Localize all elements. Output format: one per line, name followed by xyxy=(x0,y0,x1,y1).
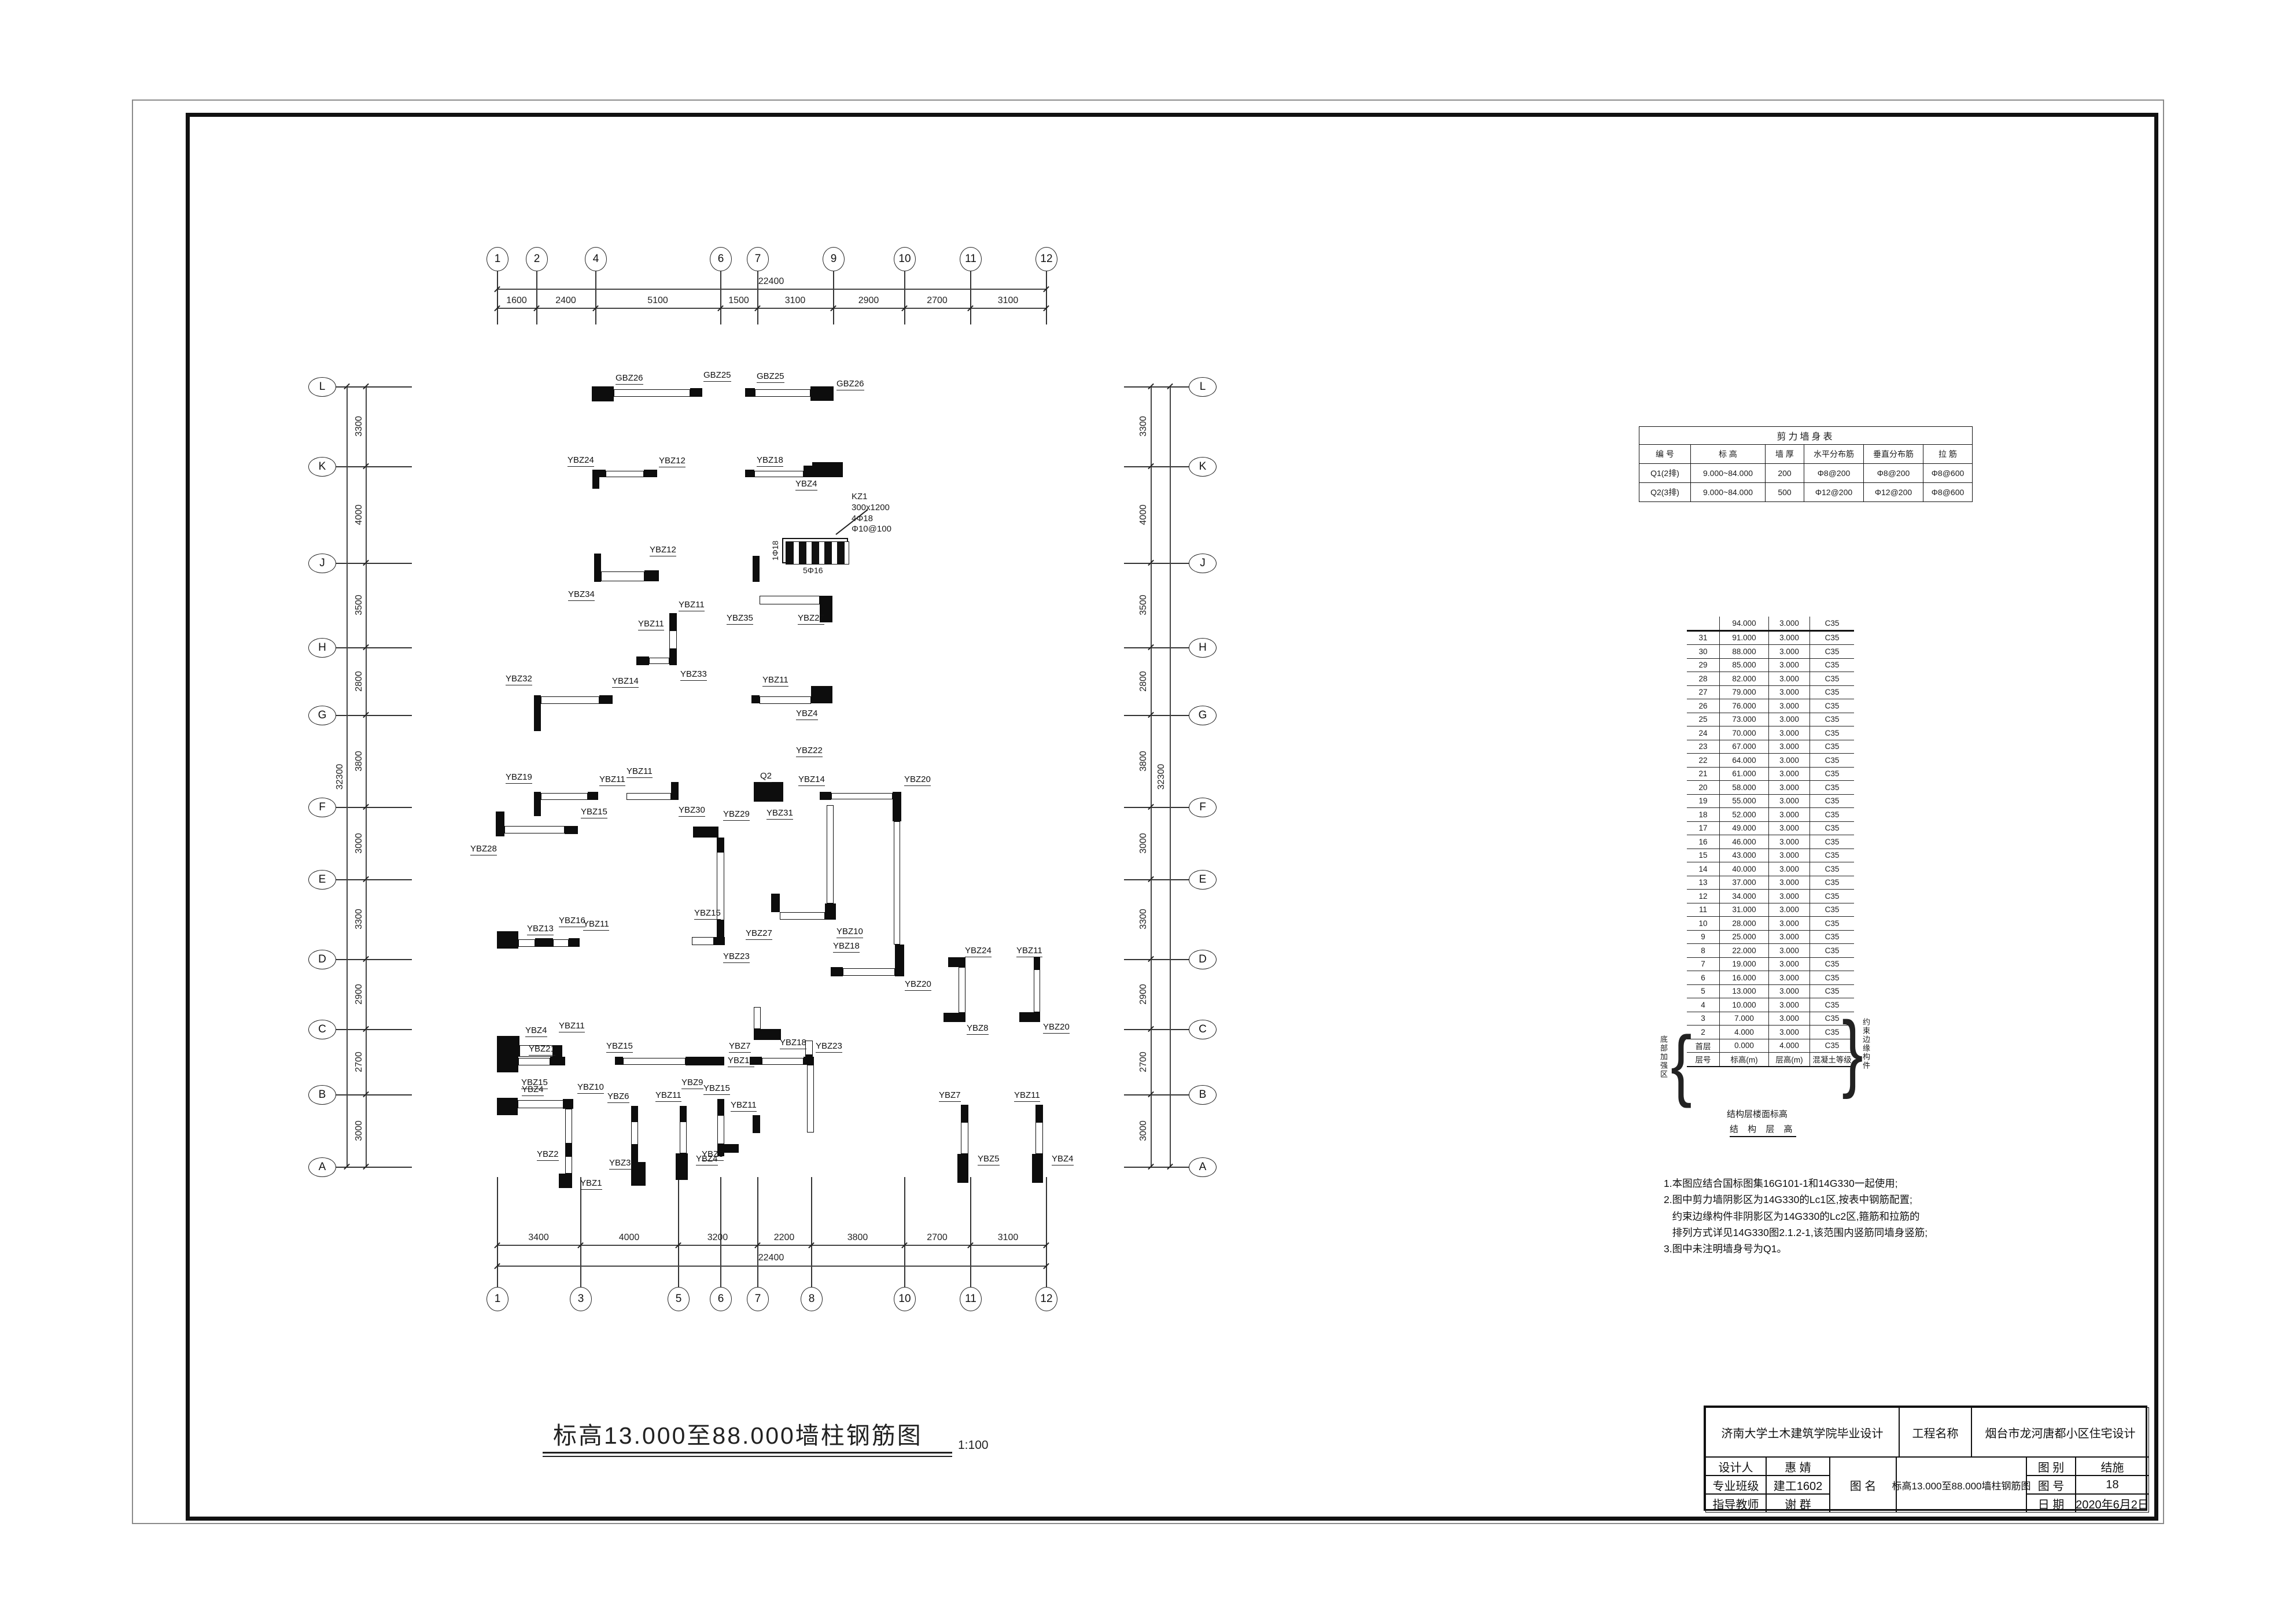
drawing-scale: 1:100 xyxy=(958,1438,989,1452)
wall-segment xyxy=(717,1115,724,1144)
wall-segment xyxy=(623,1058,686,1065)
wall-segment xyxy=(760,696,811,704)
grid-bubble-bottom: 7 xyxy=(747,1287,769,1311)
dim-right: 3300 xyxy=(1138,416,1149,437)
wall-boundary-element xyxy=(771,894,780,912)
wall-boundary-element xyxy=(636,656,649,665)
wall-segment xyxy=(1034,969,1040,1012)
right-zone-label: 约束边缘构件 xyxy=(1860,1018,1871,1070)
dim-top: 2900 xyxy=(846,296,892,306)
wall-boundary-element xyxy=(957,1154,968,1183)
wall-label: GBZ25 xyxy=(703,371,731,382)
dim-left: 3000 xyxy=(354,833,364,854)
wall-segment xyxy=(504,826,565,833)
wall-label: YBZ15 xyxy=(694,909,721,920)
wall-segment xyxy=(565,1156,572,1174)
dim-top: 2700 xyxy=(914,296,960,306)
grid-bubble-left: G xyxy=(308,706,336,725)
grid-bubble-bottom: 8 xyxy=(801,1287,823,1311)
drawing-title: 标高13.000至88.000墙柱钢筋图 xyxy=(553,1416,923,1451)
wall-segment xyxy=(553,939,569,947)
grid-line-bottom xyxy=(580,1177,581,1287)
grid-bubble-right: D xyxy=(1189,950,1217,969)
wall-label: YBZ15 xyxy=(606,1042,633,1053)
dim-right: 3000 xyxy=(1138,833,1149,854)
wall-boundary-element xyxy=(686,1057,724,1065)
wall-segment xyxy=(843,968,895,976)
wall-label: YBZ11 xyxy=(1016,946,1042,957)
dim-line-right-segments xyxy=(1151,386,1152,1167)
title-block-school: 济南大学土木建筑学院毕业设计 xyxy=(1705,1407,1899,1457)
wall-boundary-element xyxy=(745,470,754,477)
wall-label: YBZ7 xyxy=(939,1091,961,1102)
dim-left: 3000 xyxy=(354,1120,364,1141)
wall-boundary-element xyxy=(671,782,679,800)
grid-bubble-top: 6 xyxy=(710,247,732,271)
kz1-bottom-label: 5Φ16 xyxy=(803,566,823,575)
wall-label: YBZ11 xyxy=(638,619,664,630)
title-block-project-name: 烟台市龙河唐都小区住宅设计 xyxy=(1971,1407,2149,1457)
dim-right: 2900 xyxy=(1138,984,1149,1005)
floor-elevation-table: 94.0003.000C353191.0003.000C353088.0003.… xyxy=(1687,617,1854,1067)
wall-boundary-element xyxy=(534,695,541,731)
wall-label: YBZ20 xyxy=(1043,1023,1070,1034)
grid-bubble-bottom: 11 xyxy=(960,1287,982,1311)
grid-bubble-bottom: 1 xyxy=(487,1287,508,1311)
wall-label: YBZ22 xyxy=(796,746,823,757)
wall-segment xyxy=(626,793,671,800)
wall-label: YBZ2 xyxy=(537,1150,559,1161)
wall-label: YBZ5 xyxy=(978,1154,1000,1165)
wall-boundary-element xyxy=(810,386,834,401)
grid-line-right xyxy=(1124,563,1189,564)
dim-left: 3300 xyxy=(354,909,364,929)
kz1-rebar-pattern xyxy=(786,541,849,565)
wall-boundary-element xyxy=(1035,1105,1043,1122)
wall-label: YBZ7 xyxy=(729,1042,751,1053)
wall-label: YBZ19 xyxy=(506,773,532,784)
title-block-date-label: 日 期 xyxy=(2026,1494,2076,1513)
dim-line-left-total xyxy=(347,386,348,1167)
dim-right: 3000 xyxy=(1138,1120,1149,1141)
grid-bubble-right: E xyxy=(1189,870,1217,890)
dim-bottom: 3100 xyxy=(985,1233,1031,1243)
wall-label: YBZ11 xyxy=(679,600,705,611)
wall-boundary-element xyxy=(961,1105,968,1122)
wall-segment xyxy=(760,596,820,604)
grid-bubble-right: A xyxy=(1189,1157,1217,1177)
wall-boundary-element xyxy=(717,920,724,937)
grid-bubble-top: 2 xyxy=(526,247,548,271)
grid-bubble-left: C xyxy=(308,1020,336,1039)
dim-right: 2800 xyxy=(1138,671,1149,692)
dim-total-left: 32300 xyxy=(335,764,345,790)
wall-label: YBZ9 xyxy=(681,1078,703,1089)
wall-label: YBZ12 xyxy=(650,545,676,556)
grid-bubble-top: 12 xyxy=(1035,247,1057,271)
grid-bubble-bottom: 12 xyxy=(1035,1287,1057,1311)
wall-label: YBZ11 xyxy=(655,1091,681,1102)
wall-label: YBZ18 xyxy=(780,1038,806,1049)
wall-segment xyxy=(541,793,588,800)
grid-bubble-right: J xyxy=(1189,554,1217,573)
dim-left: 2700 xyxy=(354,1052,364,1072)
wall-label: YBZ10 xyxy=(577,1083,604,1094)
wall-boundary-element xyxy=(812,462,843,477)
grid-bubble-left: D xyxy=(308,950,336,969)
dim-left: 2800 xyxy=(354,671,364,692)
wall-segment xyxy=(518,1058,550,1065)
grid-bubble-right: F xyxy=(1189,798,1217,817)
dim-top: 1500 xyxy=(716,296,762,306)
wall-segment xyxy=(614,389,690,397)
dim-bottom: 2700 xyxy=(914,1233,960,1243)
general-notes: 1.本图应结合国标图集16G101-1和14G330一起使用;2.图中剪力墙阴影… xyxy=(1664,1175,1928,1257)
title-block-class-value: 建工1602 xyxy=(1766,1476,1830,1494)
wall-label: YBZ4 xyxy=(796,709,818,720)
wall-label: GBZ26 xyxy=(616,374,643,385)
wall-segment xyxy=(762,1058,804,1065)
wall-boundary-element xyxy=(496,811,504,836)
wall-label: YBZ33 xyxy=(680,670,707,681)
wall-label: YBZ24 xyxy=(965,946,992,957)
dim-right: 3300 xyxy=(1138,909,1149,929)
dim-top: 3100 xyxy=(772,296,819,306)
drawing-title-underline2 xyxy=(543,1456,952,1457)
wall-segment xyxy=(601,571,644,581)
wall-label: YBZ18 xyxy=(833,942,860,953)
title-block-type-value: 结施 xyxy=(2076,1457,2149,1476)
grid-bubble-bottom: 5 xyxy=(668,1287,690,1311)
grid-line-bottom xyxy=(497,1177,498,1287)
title-block-name-label: 图 名 xyxy=(1830,1457,1896,1513)
wall-label: GBZ26 xyxy=(836,379,864,390)
wall-label: YBZ27 xyxy=(746,929,772,940)
wall-label: YBZ3 xyxy=(609,1159,631,1170)
dim-left: 2900 xyxy=(354,984,364,1005)
dim-right: 4000 xyxy=(1138,504,1149,525)
wall-segment xyxy=(961,1122,968,1154)
wall-label: YBZ17 xyxy=(728,1056,754,1067)
wall-boundary-element xyxy=(690,388,702,397)
wall-label: YBZ18 xyxy=(757,456,783,467)
title-block-designer-label: 设计人 xyxy=(1705,1457,1766,1476)
title-block-advisor-value: 谢 群 xyxy=(1766,1494,1830,1513)
kz1-note: KZ1300x12004Φ18Φ10@100 xyxy=(852,492,891,535)
wall-label: YBZ6 xyxy=(607,1092,629,1103)
wall-segment xyxy=(959,967,965,1013)
wall-boundary-element xyxy=(811,686,832,703)
wall-boundary-element xyxy=(745,388,755,397)
wall-boundary-element xyxy=(724,1144,739,1153)
grid-line-right xyxy=(1124,1029,1189,1030)
wall-boundary-element xyxy=(644,470,657,477)
grid-bubble-left: L xyxy=(308,377,336,397)
dim-line-top-segments xyxy=(497,308,1046,309)
wall-segment xyxy=(754,1007,761,1029)
grid-line-bottom xyxy=(1046,1177,1047,1287)
wall-segment xyxy=(827,805,834,903)
wall-boundary-element xyxy=(820,792,831,800)
wall-boundary-element xyxy=(559,1174,572,1188)
wall-label: YBZ29 xyxy=(723,810,750,821)
wall-boundary-element xyxy=(1034,957,1040,969)
wall-boundary-element xyxy=(754,1029,781,1040)
wall-boundary-element xyxy=(831,967,843,976)
wall-boundary-element xyxy=(948,957,965,967)
grid-line-bottom xyxy=(811,1177,812,1287)
wall-boundary-element xyxy=(592,386,614,401)
left-zone-brace: { xyxy=(1671,1025,1692,1105)
wall-label: YBZ15 xyxy=(703,1084,730,1095)
wall-segment xyxy=(754,471,804,477)
wall-boundary-element xyxy=(534,792,541,816)
dim-bottom: 2200 xyxy=(761,1233,808,1243)
grid-line-right xyxy=(1124,715,1189,716)
wall-label: YBZ11 xyxy=(731,1101,757,1112)
grid-line-top xyxy=(1046,271,1047,324)
title-block: 济南大学土木建筑学院毕业设计 工程名称 烟台市龙河唐都小区住宅设计 设计人 惠 … xyxy=(1704,1406,2147,1511)
grid-bubble-left: E xyxy=(308,870,336,890)
wall-label: YBZ16 xyxy=(559,916,585,927)
wall-label: YBZ20 xyxy=(905,980,931,991)
dim-left: 4000 xyxy=(354,504,364,525)
wall-label: YBZ27 xyxy=(798,614,824,625)
wall-label: YBZ35 xyxy=(727,614,753,625)
wall-segment xyxy=(669,630,677,649)
grid-bubble-bottom: 10 xyxy=(894,1287,916,1311)
wall-label: YBZ31 xyxy=(766,809,793,820)
wall-segment xyxy=(518,939,535,947)
wall-label: YBZ11 xyxy=(583,920,609,931)
title-block-date-value: 2020年6月2日 xyxy=(2076,1494,2149,1513)
grid-bubble-right: G xyxy=(1189,706,1217,725)
wall-label: YBZ21 xyxy=(529,1045,555,1056)
dim-left: 3300 xyxy=(354,416,364,437)
wall-boundary-element xyxy=(497,1098,518,1115)
wall-label: GBZ25 xyxy=(757,372,784,383)
wall-label: Q2 xyxy=(760,772,772,783)
wall-segment xyxy=(631,1122,638,1145)
wall-label: YBZ4 xyxy=(525,1026,547,1037)
wall-label: YBZ11 xyxy=(626,767,653,778)
kz1-left-label: 1Φ18 xyxy=(771,541,780,561)
wall-boundary-element xyxy=(753,1115,760,1133)
wall-label: YBZ30 xyxy=(679,806,705,817)
dim-bottom: 3400 xyxy=(515,1233,562,1243)
wall-boundary-element xyxy=(751,695,760,703)
dim-top: 5100 xyxy=(635,296,681,306)
wall-label: YBZ8 xyxy=(702,1150,724,1161)
grid-line-right xyxy=(1124,647,1189,648)
title-block-class-label: 专业班级 xyxy=(1705,1476,1766,1494)
wall-segment xyxy=(805,1041,813,1055)
grid-line-right xyxy=(1124,807,1189,808)
grid-line-bottom xyxy=(904,1177,905,1287)
wall-label: YBZ11 xyxy=(599,775,625,786)
grid-bubble-right: K xyxy=(1189,457,1217,477)
wall-segment xyxy=(755,389,810,397)
grid-bubble-top: 4 xyxy=(585,247,607,271)
wall-label: YBZ4 xyxy=(1052,1154,1074,1165)
wall-segment xyxy=(780,912,825,920)
grid-line-bottom xyxy=(720,1177,721,1287)
dim-line-bottom-total xyxy=(497,1266,1046,1267)
shear-wall-table-grid: 剪力墙身表编 号标 高墙 厚水平分布筋垂直分布筋拉 筋Q1(2排)9.000~8… xyxy=(1639,426,1973,502)
grid-line-right xyxy=(1124,1094,1189,1095)
title-block-advisor-label: 指导教师 xyxy=(1705,1494,1766,1513)
drawing-title-underline xyxy=(543,1452,952,1454)
wall-boundary-element xyxy=(592,470,599,489)
wall-boundary-element xyxy=(895,945,904,976)
dim-line-right-total xyxy=(1170,386,1171,1167)
wall-label: YBZ4 xyxy=(522,1085,544,1096)
wall-label: YBZ20 xyxy=(904,775,931,786)
title-block-drawing-name: 标高13.000至88.000墙柱钢筋图 xyxy=(1896,1457,2026,1513)
grid-line-right xyxy=(1124,466,1189,467)
grid-bubble-left: J xyxy=(308,554,336,573)
wall-segment xyxy=(807,1065,814,1133)
wall-boundary-element xyxy=(550,1057,565,1065)
wall-label: YBZ12 xyxy=(659,456,686,467)
grid-bubble-top: 10 xyxy=(894,247,916,271)
wall-boundary-element xyxy=(714,937,725,945)
wall-label: YBZ24 xyxy=(567,456,594,467)
wall-segment xyxy=(680,1122,687,1153)
wall-boundary-element xyxy=(615,1057,623,1065)
grid-bubble-right: L xyxy=(1189,377,1217,397)
wall-segment xyxy=(606,471,644,477)
wall-segment xyxy=(1035,1122,1043,1154)
wall-boundary-element xyxy=(669,649,677,665)
grid-bubble-left: H xyxy=(308,638,336,658)
wall-label: YBZ14 xyxy=(798,775,825,786)
wall-boundary-element xyxy=(631,1106,638,1122)
wall-boundary-element xyxy=(565,1144,572,1156)
grid-line-right xyxy=(1124,959,1189,960)
wall-label: YBZ11 xyxy=(762,676,788,687)
title-block-number-value: 18 xyxy=(2076,1476,2149,1494)
dim-top: 2400 xyxy=(543,296,589,306)
dim-top: 3100 xyxy=(985,296,1031,306)
wall-boundary-element xyxy=(1019,1012,1040,1022)
wall-label: YBZ4 xyxy=(795,479,817,490)
wall-boundary-element xyxy=(594,554,601,582)
wall-segment xyxy=(831,793,893,799)
left-zone-label: 底部加强区 xyxy=(1658,1035,1669,1079)
wall-boundary-element xyxy=(631,1145,638,1162)
wall-label: YBZ23 xyxy=(723,952,750,963)
wall-boundary-element xyxy=(588,792,598,800)
shear-wall-table: 剪力墙身表编 号标 高墙 厚水平分布筋垂直分布筋拉 筋Q1(2排)9.000~8… xyxy=(1639,426,1973,502)
dim-right: 3800 xyxy=(1138,751,1149,772)
wall-boundary-element xyxy=(805,1055,813,1065)
dim-total-bottom: 22400 xyxy=(742,1253,800,1263)
grid-line-right xyxy=(1124,879,1189,880)
title-block-number-label: 图 号 xyxy=(2026,1476,2076,1494)
dim-right: 2700 xyxy=(1138,1052,1149,1072)
wall-boundary-element xyxy=(1032,1154,1043,1183)
floor-table-caption1: 结构层楼面标高 xyxy=(1727,1108,1788,1120)
grid-bubble-top: 11 xyxy=(960,247,982,271)
grid-bubble-top: 1 xyxy=(487,247,508,271)
wall-label: YBZ11 xyxy=(559,1021,585,1032)
grid-line-right xyxy=(1124,1167,1189,1168)
wall-boundary-element xyxy=(563,1099,573,1109)
wall-boundary-element xyxy=(717,838,724,852)
grid-bubble-left: K xyxy=(308,457,336,477)
dim-bottom: 3800 xyxy=(835,1233,881,1243)
wall-segment xyxy=(541,696,599,704)
wall-label: YBZ32 xyxy=(506,674,532,685)
title-block-project-label: 工程名称 xyxy=(1899,1407,1971,1457)
grid-bubble-right: H xyxy=(1189,638,1217,658)
wall-boundary-element xyxy=(717,1099,724,1115)
wall-label: YBZ14 xyxy=(612,677,639,688)
grid-line-bottom xyxy=(678,1177,679,1287)
wall-boundary-element xyxy=(680,1106,687,1122)
dim-line-top-total xyxy=(497,289,1046,290)
title-block-type-label: 图 别 xyxy=(2026,1457,2076,1476)
floor-elevation-table-grid: 94.0003.000C353191.0003.000C353088.0003.… xyxy=(1687,617,1854,1067)
grid-line-top xyxy=(833,271,834,324)
wall-label: YBZ34 xyxy=(568,590,595,601)
grid-bubble-right: B xyxy=(1189,1085,1217,1105)
grid-bubble-top: 9 xyxy=(823,247,845,271)
wall-boundary-element xyxy=(754,782,783,802)
wall-boundary-element xyxy=(599,695,613,704)
wall-boundary-element xyxy=(535,938,553,947)
grid-bubble-bottom: 3 xyxy=(570,1287,592,1311)
grid-line-right xyxy=(1124,386,1189,388)
wall-boundary-element xyxy=(676,1153,688,1180)
grid-line-bottom xyxy=(970,1177,971,1287)
dim-bottom: 3200 xyxy=(695,1233,741,1243)
dim-total-right: 32300 xyxy=(1156,764,1167,790)
wall-boundary-element xyxy=(644,570,659,581)
wall-boundary-element xyxy=(825,903,836,920)
floor-plan: 1246791011122240016002400510015003100290… xyxy=(0,0,2296,1623)
grid-line-top xyxy=(904,271,905,324)
grid-bubble-bottom: 6 xyxy=(710,1287,732,1311)
wall-label: YBZ10 xyxy=(836,927,863,938)
wall-boundary-element xyxy=(693,827,718,838)
dim-left: 3800 xyxy=(354,751,364,772)
grid-line-top xyxy=(595,271,596,324)
wall-boundary-element xyxy=(497,1036,519,1057)
grid-line-top xyxy=(970,271,971,324)
grid-bubble-left: A xyxy=(308,1157,336,1177)
wall-label: YBZ28 xyxy=(470,844,497,855)
wall-boundary-element xyxy=(631,1162,646,1186)
dim-bottom: 4000 xyxy=(606,1233,653,1243)
wall-segment xyxy=(565,1109,572,1144)
wall-boundary-element xyxy=(565,826,578,834)
grid-bubble-top: 7 xyxy=(747,247,769,271)
wall-segment xyxy=(692,937,714,945)
floor-table-caption2: 结 构 层 高 xyxy=(1730,1123,1796,1137)
wall-segment xyxy=(649,658,669,664)
wall-boundary-element xyxy=(669,613,677,630)
kz1-section xyxy=(782,538,848,563)
wall-label: YBZ11 xyxy=(1014,1091,1040,1102)
wall-boundary-element xyxy=(497,931,518,949)
dim-total-top: 22400 xyxy=(742,276,800,287)
wall-label: YBZ1 xyxy=(580,1179,602,1190)
wall-segment xyxy=(894,821,900,945)
dim-left: 3500 xyxy=(354,595,364,615)
grid-bubble-left: B xyxy=(308,1085,336,1105)
